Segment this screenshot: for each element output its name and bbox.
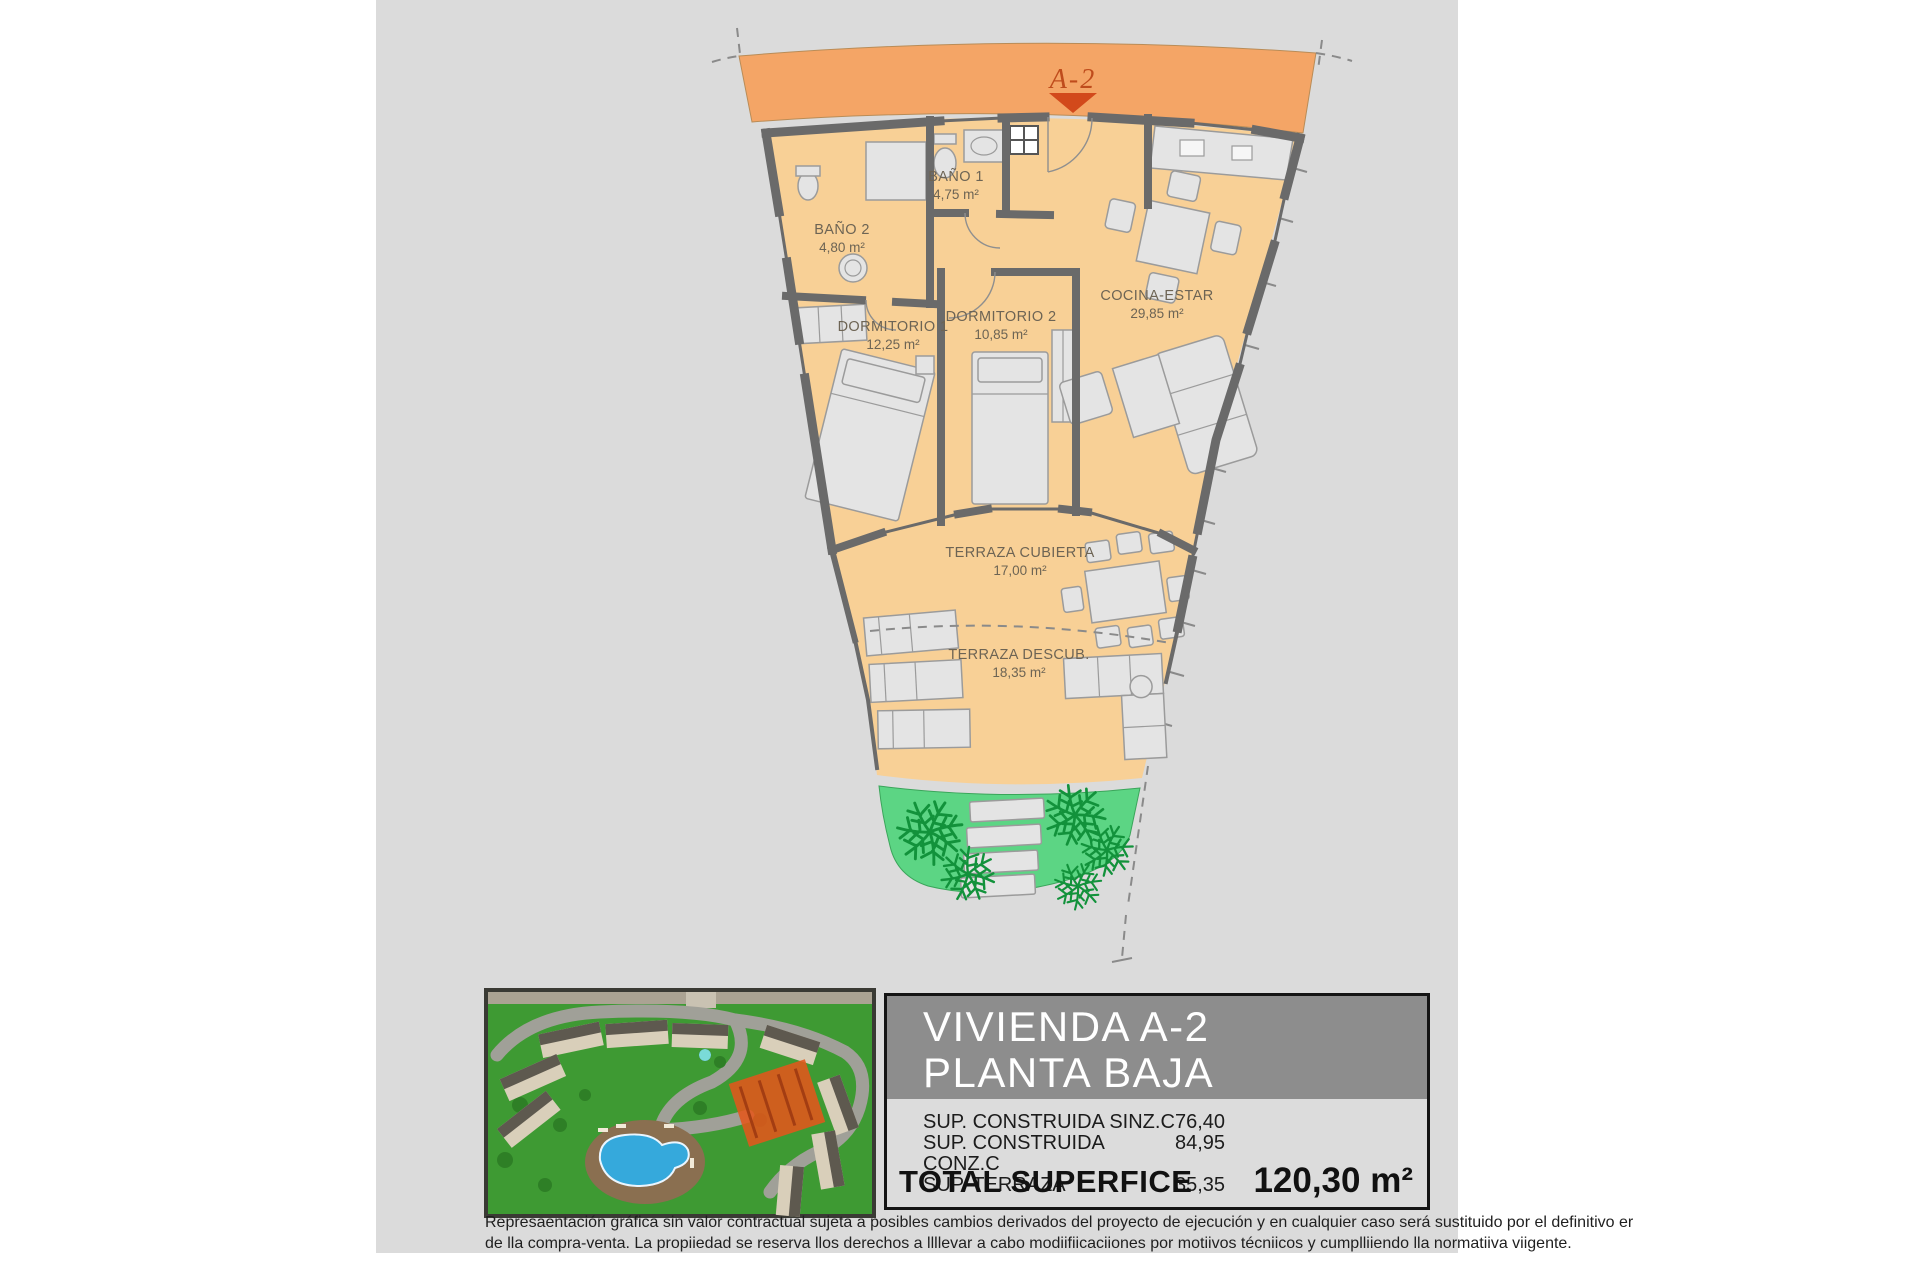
- svg-text:12,25 m²: 12,25 m²: [866, 337, 920, 352]
- shower-tray: [866, 142, 926, 200]
- svg-text:17,00 m²: 17,00 m²: [993, 563, 1047, 578]
- room-label-cocina: COCINA-ESTAR: [1100, 288, 1213, 304]
- surface-row-label: SUP. CONSTRUIDA SINZ.C: [923, 1112, 1175, 1133]
- surface-row-value: 76,40: [1175, 1112, 1225, 1133]
- svg-text:18,35 m²: 18,35 m²: [992, 665, 1046, 680]
- unit-title-line2: PLANTA BAJA: [923, 1050, 1427, 1096]
- room-label-bano2: BAÑO 2: [814, 221, 870, 238]
- room-label-dormitorio1: DORMITORIO 1: [838, 319, 949, 335]
- room-label-terraza-cubierta: TERRAZA CUBIERTA: [945, 545, 1094, 561]
- site-plan-image: [486, 990, 874, 1217]
- room-label-dormitorio2: DORMITORIO 2: [946, 309, 1057, 325]
- floorplan-page: { "page": { "bg_color": "#ffffff", "pane…: [0, 0, 1920, 1280]
- total-surface-label: TOTAL SUPERFICE: [899, 1164, 1192, 1200]
- disclaimer-line2: de lla compra-venta. La propiiedad se re…: [485, 1234, 1495, 1255]
- sun-loungers: [864, 610, 971, 749]
- room-label-bano1: BAÑO 1: [928, 168, 984, 185]
- svg-text:29,85 m²: 29,85 m²: [1130, 306, 1184, 321]
- unit-label: A-2: [1048, 64, 1096, 95]
- total-surface-row: TOTAL SUPERFICE 120,30 m²: [899, 1161, 1413, 1201]
- unit-title-box: VIVIENDA A-2 PLANTA BAJA: [887, 996, 1427, 1099]
- legal-disclaimer: Represaentación gráfica sin valor contra…: [485, 1213, 1495, 1254]
- svg-text:4,80 m²: 4,80 m²: [819, 240, 865, 255]
- unit-title-line1: VIVIENDA A-2: [923, 1004, 1427, 1050]
- total-surface-value: 120,30 m²: [1253, 1161, 1413, 1201]
- round-sink: [839, 254, 867, 282]
- disclaimer-line1: Represaentación gráfica sin valor contra…: [485, 1213, 1495, 1234]
- surface-row: SUP. CONSTRUIDA SINZ.C 76,40: [923, 1112, 1427, 1133]
- shaft-grid: [1010, 126, 1038, 154]
- pool: [585, 1120, 705, 1204]
- room-label-terraza-descub: TERRAZA DESCUB.: [948, 647, 1089, 663]
- svg-text:4,75 m²: 4,75 m²: [933, 187, 979, 202]
- unit-info-panel: VIVIENDA A-2 PLANTA BAJA SUP. CONSTRUIDA…: [884, 993, 1430, 1210]
- bed-dormitorio-2: [972, 352, 1048, 504]
- svg-text:10,85 m²: 10,85 m²: [974, 327, 1028, 342]
- sink-counter: [964, 130, 1004, 162]
